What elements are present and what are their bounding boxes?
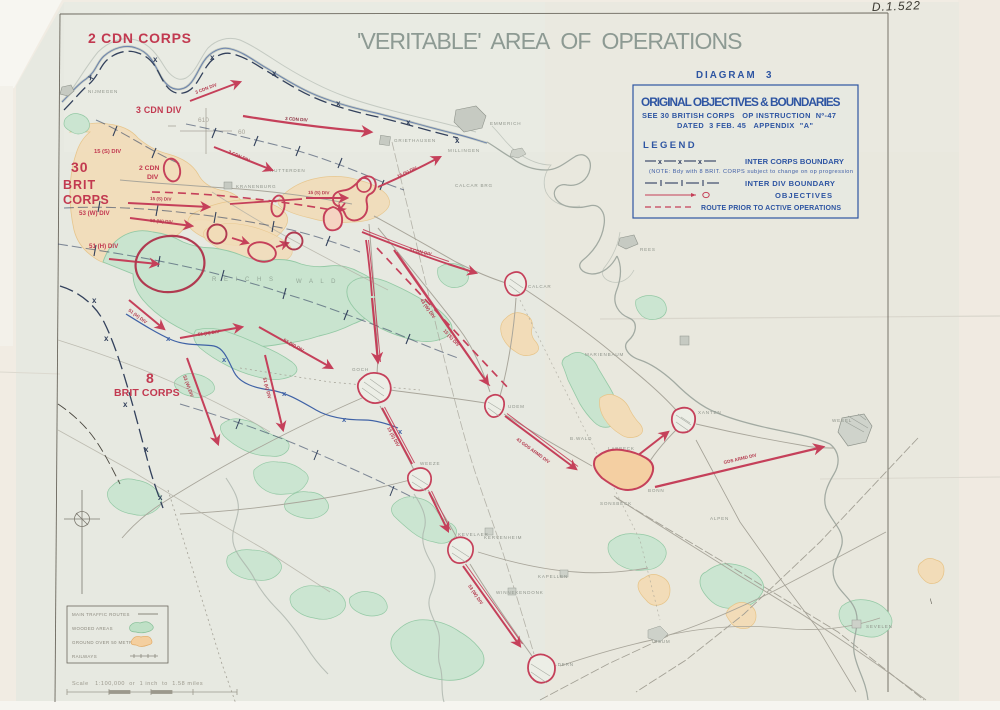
svg-text:x: x — [698, 159, 702, 166]
svg-text:610: 610 — [198, 117, 209, 124]
svg-text:x: x — [158, 493, 163, 502]
svg-text:SEE 30 BRITISH CORPS OP INST: SEE 30 BRITISH CORPS OP INSTRUCTION Nº-4… — [642, 111, 836, 120]
svg-text:ROUTE PRIOR TO ACTIVE OPERATIO: ROUTE PRIOR TO ACTIVE OPERATIONS — [701, 205, 841, 212]
svg-text:INTER DIV BOUNDARY: INTER DIV BOUNDARY — [745, 179, 835, 188]
svg-text:UDEM: UDEM — [508, 404, 525, 409]
svg-text:53 (W) DIV: 53 (W) DIV — [79, 210, 110, 217]
svg-text:GRIETHAUSEN: GRIETHAUSEN — [394, 138, 436, 143]
svg-text:B.WALD: B.WALD — [570, 436, 592, 441]
svg-text:D.1.522: D.1.522 — [872, 0, 921, 14]
svg-text:KRANENBURG: KRANENBURG — [236, 184, 276, 189]
svg-text:BONN: BONN — [648, 488, 664, 493]
svg-text:KERVENHEIM: KERVENHEIM — [484, 535, 522, 540]
svg-text:x: x — [104, 334, 109, 343]
svg-text:INTER CORPS BOUNDARY: INTER CORPS BOUNDARY — [745, 157, 844, 166]
svg-text:SEVELEN: SEVELEN — [866, 624, 893, 629]
svg-text:x: x — [144, 445, 149, 454]
svg-text:DATED 3 FEB. 45 APPENDIX ": DATED 3 FEB. 45 APPENDIX "A" — [677, 121, 813, 130]
svg-text:x: x — [336, 99, 341, 108]
svg-text:3 CDN DIV: 3 CDN DIV — [136, 105, 182, 115]
svg-text:2 CDN CORPS: 2 CDN CORPS — [88, 30, 192, 46]
svg-text:8: 8 — [146, 370, 154, 386]
svg-text:CALCAR BRG: CALCAR BRG — [455, 183, 493, 188]
svg-text:ISSUM: ISSUM — [652, 639, 671, 644]
svg-text:XANTEN: XANTEN — [698, 410, 721, 415]
svg-text:DIAGRAM 3: DIAGRAM 3 — [696, 70, 774, 81]
svg-text:2 CDN: 2 CDN — [139, 165, 159, 172]
svg-text:REES: REES — [640, 247, 656, 252]
svg-text:ALPEN: ALPEN — [710, 516, 729, 521]
svg-text:x: x — [455, 136, 460, 145]
svg-text:MAIN TRAFFIC ROUTES: MAIN TRAFFIC ROUTES — [72, 612, 130, 617]
svg-text:x: x — [123, 400, 128, 409]
svg-text:KAPELLEN: KAPELLEN — [538, 574, 568, 579]
svg-text:DIV: DIV — [147, 174, 159, 181]
svg-text:OBJECTIVES: OBJECTIVES — [775, 191, 833, 200]
svg-text:CALCAR: CALCAR — [528, 284, 551, 289]
svg-text:Scale 1:100,000 or 1 inch: Scale 1:100,000 or 1 inch to 1.58 miles — [72, 681, 203, 687]
svg-text:x: x — [678, 159, 682, 166]
svg-text:x: x — [92, 296, 97, 305]
svg-text:(NOTE: Bdy with 8 BRIT. CORPS: (NOTE: Bdy with 8 BRIT. CORPS subject to… — [649, 169, 853, 175]
svg-text:x: x — [210, 53, 215, 62]
svg-text:15 (S) DIV: 15 (S) DIV — [94, 149, 121, 155]
svg-text:WESEL: WESEL — [832, 418, 852, 423]
svg-text:30: 30 — [71, 159, 89, 175]
svg-text:GROUND OVER 50 METRES: GROUND OVER 50 METRES — [72, 640, 139, 645]
svg-text:x: x — [406, 118, 411, 127]
svg-text:NUTTERDEN: NUTTERDEN — [270, 168, 306, 173]
svg-text:GOCH: GOCH — [352, 367, 369, 372]
svg-text:WEEZE: WEEZE — [420, 461, 440, 466]
svg-text:60: 60 — [238, 129, 246, 136]
svg-text:WINNEKENDONK: WINNEKENDONK — [496, 590, 544, 595]
svg-text:SONSBECK: SONSBECK — [600, 501, 632, 506]
svg-text:51 (H) DIV: 51 (H) DIV — [89, 243, 119, 250]
svg-text:RAILWAYS: RAILWAYS — [72, 654, 97, 659]
svg-text:'VERITABLE' AREA OF OPERATI: 'VERITABLE' AREA OF OPERATIONS — [357, 28, 745, 54]
svg-text:x: x — [272, 69, 277, 78]
svg-text:15 (S) DIV: 15 (S) DIV — [308, 190, 330, 195]
svg-text:BRIT CORPS: BRIT CORPS — [114, 387, 180, 399]
svg-text:MARIENBAUM: MARIENBAUM — [585, 352, 624, 357]
svg-text:EMMERICH: EMMERICH — [490, 121, 521, 126]
svg-text:\: \ — [930, 599, 932, 606]
svg-text:CORPS: CORPS — [63, 193, 109, 207]
svg-text:15 (S) DIV: 15 (S) DIV — [150, 196, 173, 202]
svg-text:x: x — [658, 159, 662, 166]
svg-text:WOODED AREAS: WOODED AREAS — [72, 626, 113, 631]
svg-text:LEGEND: LEGEND — [643, 140, 697, 151]
svg-text:NIJMEGEN: NIJMEGEN — [88, 89, 118, 94]
svg-text:BRIT: BRIT — [63, 178, 96, 192]
svg-text:ORIGINAL OBJECTIVES & BOUNDARI: ORIGINAL OBJECTIVES & BOUNDARIES — [641, 95, 841, 109]
svg-text:MILLINGEN: MILLINGEN — [448, 148, 480, 153]
svg-text:x: x — [153, 55, 158, 64]
svg-text:W A L D: W A L D — [296, 279, 338, 285]
